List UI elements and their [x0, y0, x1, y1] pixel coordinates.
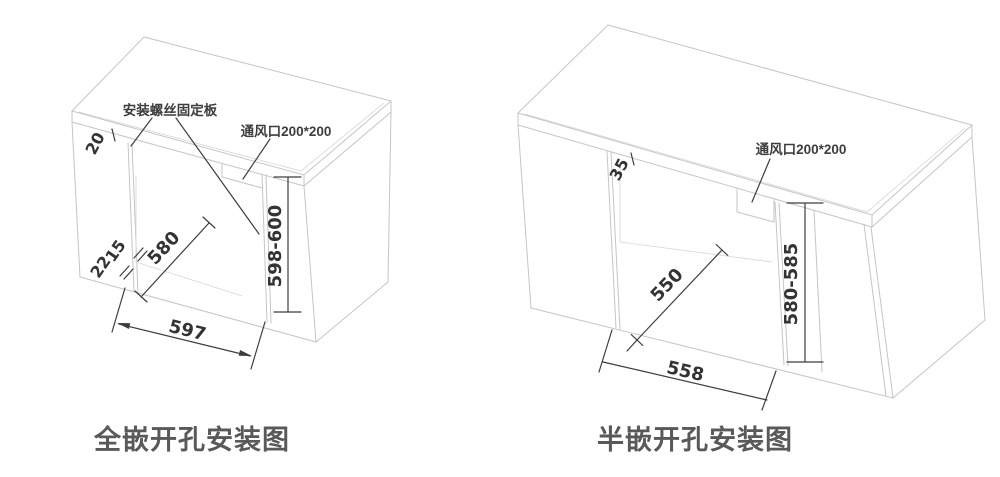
right-front-right-corner-edge [864, 224, 893, 398]
right-mount-strip-edge [814, 210, 822, 372]
dim-597-value: 597 [167, 316, 209, 345]
left-cutout-interior [136, 176, 242, 296]
left-installation-diagram: 安装螺丝固定板 通风口200*200 20 22 15 580 598-600 … [72, 37, 391, 455]
left-vent-notch [222, 164, 262, 188]
left-vent-label: 通风口200*200 [241, 124, 332, 139]
left-diagram-caption: 全嵌开孔安装图 [93, 424, 290, 455]
dim-597-arrow-left [117, 323, 130, 329]
installation-diagram-page: 安装螺丝固定板 通风口200*200 20 22 15 580 598-600 … [0, 0, 1000, 477]
right-installation-diagram: 通风口200*200 35 550 580-585 558 半嵌开孔安装图 [518, 25, 985, 455]
dim-598-600-value: 598-600 [265, 205, 286, 288]
dim-580-line [135, 217, 215, 302]
right-vent-label: 通风口200*200 [756, 142, 847, 157]
left-cutout-left-edge [128, 143, 138, 293]
right-countertop-top [518, 25, 972, 215]
right-side-outer-edge [518, 125, 531, 308]
right-cabinet-drawing [518, 25, 985, 398]
dim-597-arrow-right [239, 350, 252, 356]
dim-580-585-value: 580-585 [781, 243, 802, 326]
dim-20-value: 20 [82, 129, 109, 158]
mount-plate-label: 安装螺丝固定板 [123, 102, 218, 118]
left-countertop-top [72, 37, 391, 175]
right-bottom-front-edge [531, 308, 893, 398]
dim-35-tick [631, 153, 634, 165]
dim-558-value: 558 [665, 357, 706, 386]
diagram-canvas: 安装螺丝固定板 通风口200*200 20 22 15 580 598-600 … [0, 0, 1000, 477]
dim-35-value: 35 [606, 155, 633, 184]
right-diagram-caption: 半嵌开孔安装图 [597, 425, 793, 455]
right-cutout-interior [620, 166, 772, 262]
dim-580-value: 580 [143, 227, 184, 269]
left-side-outer-edge [72, 122, 80, 277]
dim-22-ticks [120, 266, 133, 279]
dim-20-tick [112, 129, 115, 141]
dim-550-line [627, 245, 728, 352]
left-cabinet-drawing [72, 37, 391, 342]
dim-550-value: 550 [646, 264, 687, 306]
